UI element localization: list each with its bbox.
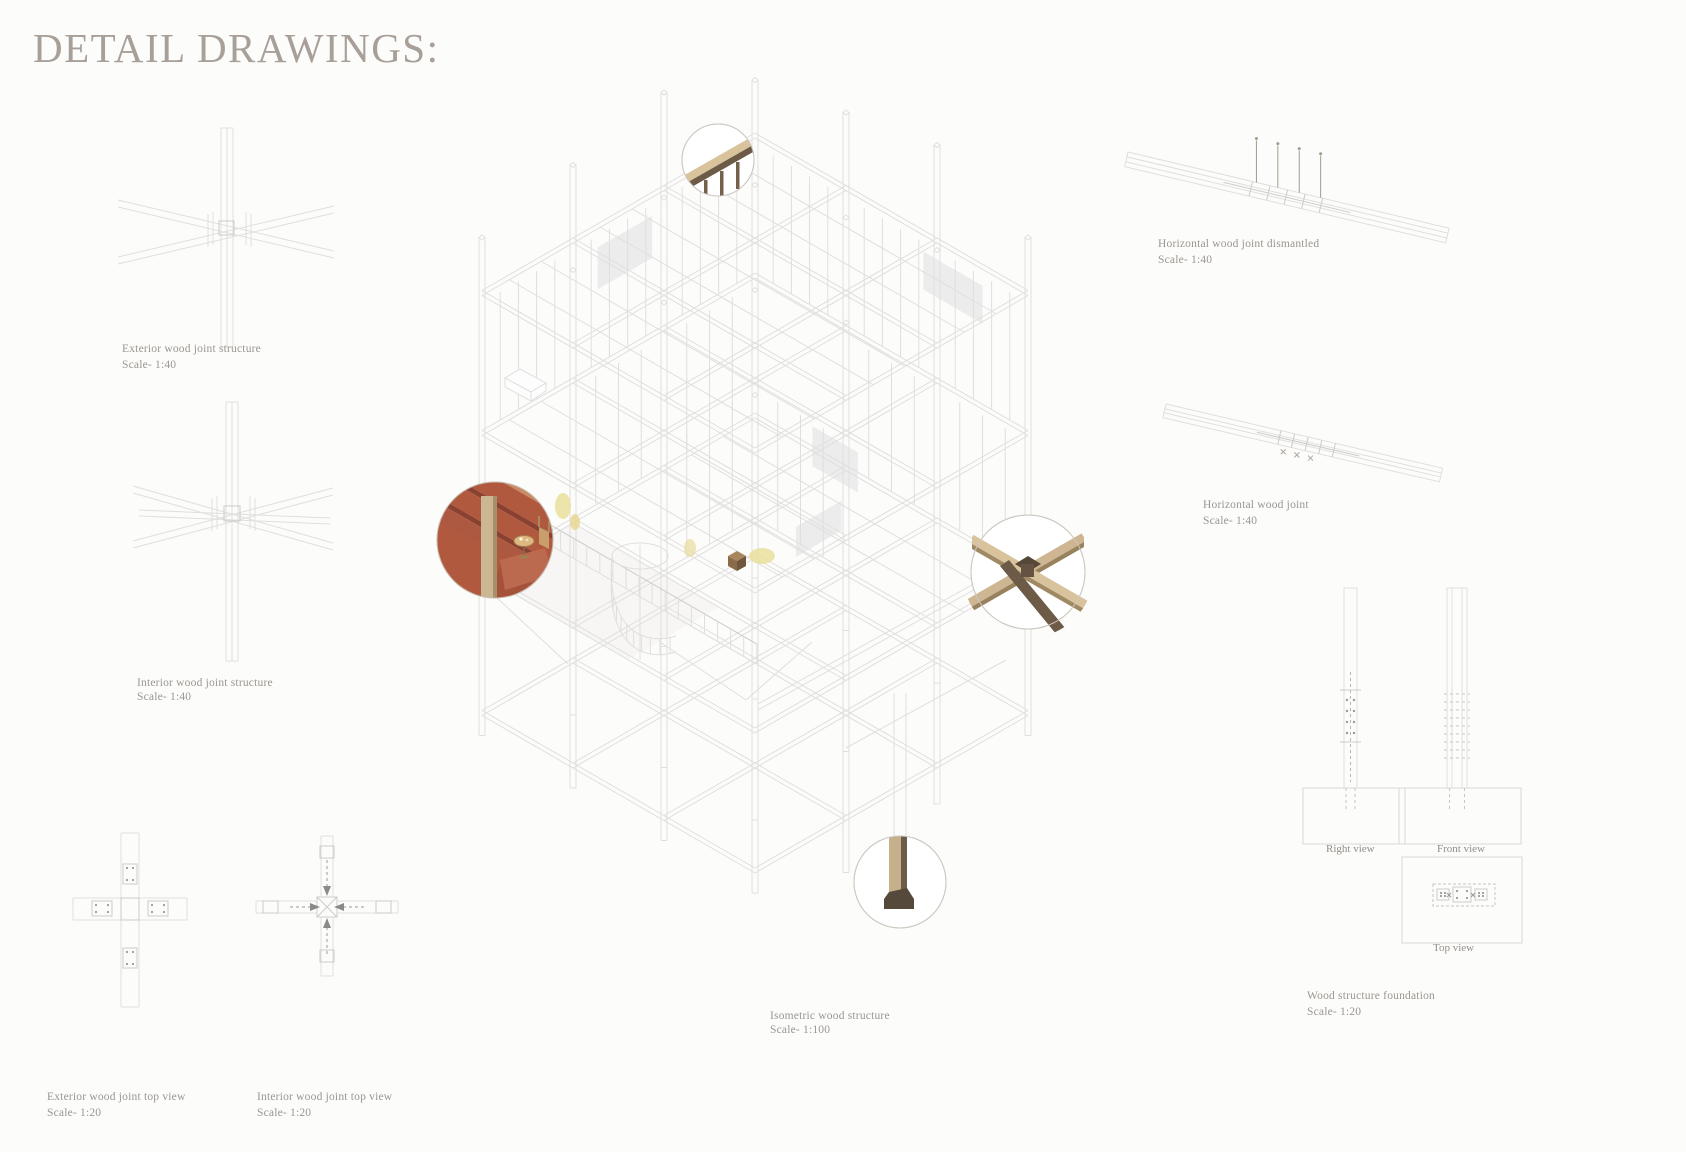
caption-scale: Scale- 1:40 bbox=[1158, 252, 1319, 268]
caption-title: Interior wood joint structure bbox=[137, 676, 273, 690]
detail-drawings-sheet: DETAIL DRAWINGS: Exterior wood joint str… bbox=[0, 0, 1686, 1152]
caption-scale: Scale- 1:20 bbox=[47, 1105, 185, 1121]
caption-title: Isometric wood structure bbox=[770, 1009, 890, 1023]
detail-callout-roof-beam bbox=[674, 124, 762, 216]
label-front-view: Front view bbox=[1437, 843, 1485, 856]
caption-exterior-top: Exterior wood joint top view Scale- 1:20 bbox=[47, 1089, 185, 1121]
caption-horizontal-joint: Horizontal wood joint Scale- 1:40 bbox=[1203, 497, 1309, 529]
caption-scale: Scale- 1:40 bbox=[122, 357, 261, 373]
caption-title: Wood structure foundation bbox=[1307, 988, 1435, 1004]
caption-isometric-structure: Isometric wood structure Scale- 1:100 bbox=[770, 1009, 890, 1037]
detail-callout-cross-joint bbox=[952, 515, 1100, 646]
label-right-view: Right view bbox=[1326, 843, 1375, 856]
interior-wood-joint-top-view-drawing bbox=[256, 836, 398, 976]
detail-callouts bbox=[395, 124, 1100, 928]
caption-title: Horizontal wood joint dismantled bbox=[1158, 236, 1319, 252]
caption-scale: Scale- 1:20 bbox=[257, 1105, 392, 1121]
isometric-wood-structure-drawing bbox=[479, 78, 1031, 894]
horizontal-wood-joint-dismantled-drawing bbox=[1125, 137, 1450, 243]
exterior-wood-joint-drawing bbox=[118, 128, 334, 347]
caption-horizontal-dismantled: Horizontal wood joint dismantled Scale- … bbox=[1158, 236, 1319, 268]
caption-scale: Scale- 1:40 bbox=[1203, 513, 1309, 529]
detail-callout-column-foot bbox=[854, 834, 946, 928]
caption-title: Exterior wood joint structure bbox=[122, 341, 261, 357]
wood-structure-foundation-drawing bbox=[1303, 588, 1522, 943]
caption-scale: Scale- 1:20 bbox=[1307, 1004, 1435, 1020]
exterior-wood-joint-top-view-drawing bbox=[73, 833, 187, 1007]
caption-foundation: Wood structure foundation Scale- 1:20 bbox=[1307, 988, 1435, 1020]
caption-scale: Scale- 1:100 bbox=[770, 1023, 890, 1037]
interior-wood-joint-drawing bbox=[133, 402, 333, 661]
horizontal-wood-joint-drawing bbox=[1163, 404, 1443, 482]
caption-title: Horizontal wood joint bbox=[1203, 497, 1309, 513]
caption-title: Interior wood joint top view bbox=[257, 1089, 392, 1105]
caption-scale: Scale- 1:40 bbox=[137, 690, 273, 704]
drawing-canvas bbox=[0, 0, 1686, 1152]
caption-exterior-joint: Exterior wood joint structure Scale- 1:4… bbox=[122, 341, 261, 373]
caption-interior-joint: Interior wood joint structure Scale- 1:4… bbox=[137, 676, 273, 704]
label-top-view: Top view bbox=[1433, 942, 1474, 955]
caption-title: Exterior wood joint top view bbox=[47, 1089, 185, 1105]
caption-interior-top: Interior wood joint top view Scale- 1:20 bbox=[257, 1089, 392, 1121]
